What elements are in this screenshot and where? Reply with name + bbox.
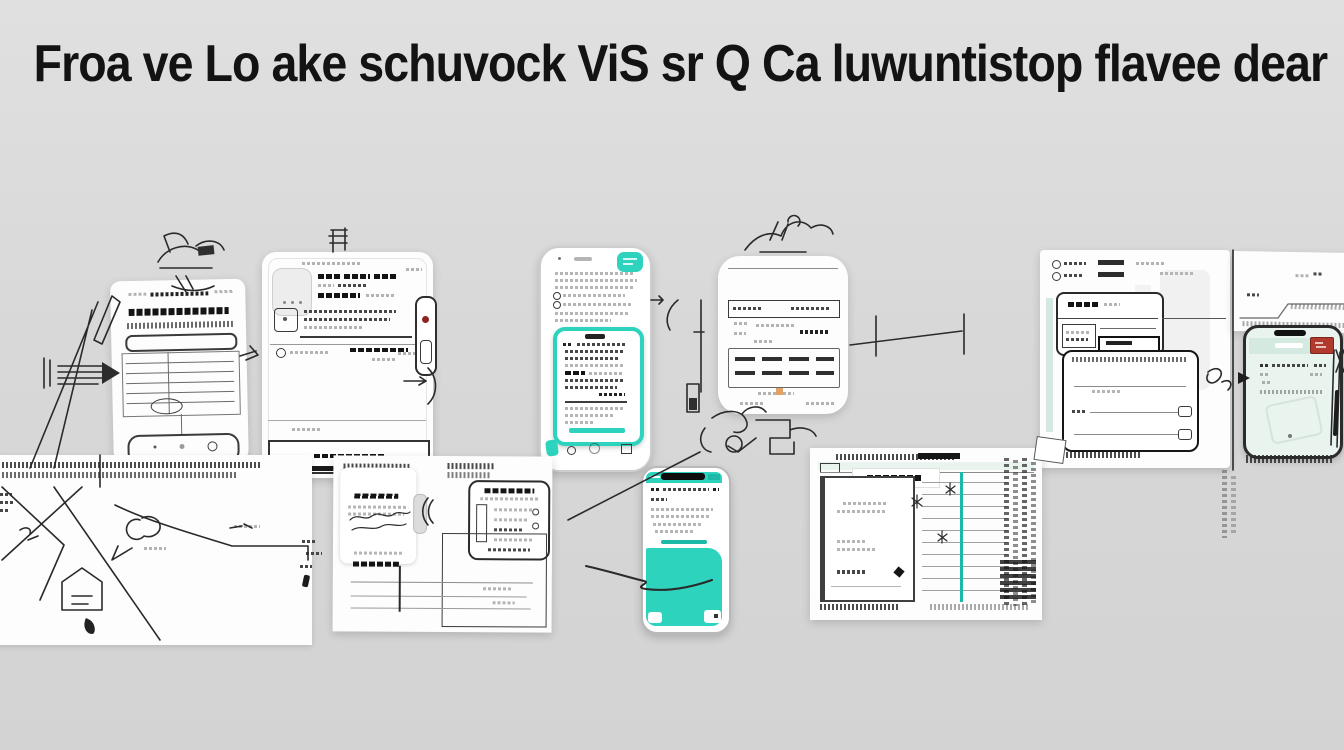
table-row-line bbox=[922, 542, 1008, 543]
corner-chip bbox=[704, 610, 721, 623]
headline-text: Froa ve Lo ake schuvock ViS sr Q Ca luwu… bbox=[34, 34, 1311, 93]
scribble-line bbox=[734, 332, 746, 335]
scribble-line bbox=[1262, 381, 1270, 384]
scribble-line bbox=[150, 291, 208, 296]
teal-content-block bbox=[646, 548, 722, 626]
dash bbox=[789, 371, 809, 375]
tiny-circle-icon bbox=[276, 348, 286, 358]
scribble-line bbox=[563, 343, 573, 346]
scribble-line bbox=[563, 294, 625, 297]
margin-mark bbox=[0, 501, 14, 504]
header-scribble-row bbox=[2, 462, 260, 468]
margin-mark bbox=[0, 509, 10, 512]
table-row-line bbox=[922, 494, 1008, 495]
corner-chip bbox=[648, 612, 662, 623]
scribble-line bbox=[733, 307, 763, 310]
scribble-line bbox=[1313, 272, 1323, 275]
table-row-line bbox=[922, 482, 1008, 483]
teal-side-stripe bbox=[1046, 298, 1053, 432]
embedded-teal-card bbox=[553, 327, 644, 446]
card-heading-scribble bbox=[484, 488, 534, 493]
content-line bbox=[1090, 412, 1178, 413]
field-pill bbox=[125, 333, 237, 352]
table-row-line bbox=[922, 566, 1008, 567]
margin-glyph-column bbox=[1222, 470, 1227, 538]
scribble-line bbox=[304, 310, 396, 313]
header-bar bbox=[728, 300, 840, 318]
footer-dot bbox=[179, 444, 184, 449]
tab-mark bbox=[623, 263, 633, 265]
side-pill-control bbox=[415, 296, 437, 376]
top-rule bbox=[728, 268, 838, 269]
camera-dot bbox=[558, 257, 561, 260]
header-scribble-row bbox=[447, 463, 495, 469]
scribble-line bbox=[1136, 262, 1166, 265]
dash bbox=[762, 371, 782, 375]
status-text-mark bbox=[650, 476, 660, 478]
name-scribble bbox=[318, 274, 340, 279]
scribble-line bbox=[318, 284, 334, 287]
scribble-line bbox=[1064, 274, 1082, 277]
card-divider bbox=[565, 401, 627, 403]
scribble-line bbox=[565, 357, 619, 360]
float-label bbox=[144, 547, 166, 550]
scribble-line bbox=[599, 393, 625, 396]
scribble-line bbox=[754, 340, 774, 343]
scribble-line bbox=[366, 294, 396, 297]
scribble-line bbox=[1072, 410, 1086, 413]
thin-rule bbox=[268, 420, 426, 421]
table-row-line bbox=[922, 530, 1008, 531]
section-divider bbox=[270, 344, 420, 345]
scribble-line bbox=[806, 402, 834, 405]
profile-card bbox=[262, 252, 433, 478]
scribble-line bbox=[565, 350, 625, 353]
scribble-line bbox=[577, 343, 625, 346]
tilted-note-card bbox=[1033, 436, 1066, 464]
scribble-line bbox=[1295, 274, 1309, 277]
phone-notch bbox=[661, 473, 705, 480]
avatar-dot bbox=[299, 301, 302, 304]
dash bbox=[816, 371, 834, 375]
heavy-vertical-mark bbox=[399, 566, 401, 612]
tab-mark bbox=[623, 258, 637, 260]
window-cell bbox=[1062, 324, 1096, 348]
teal-corner-tab bbox=[617, 252, 643, 272]
scribble-line bbox=[555, 319, 611, 322]
teal-blob-icon bbox=[545, 439, 559, 457]
form-documents-sheet bbox=[333, 455, 553, 632]
caption-scribble-row bbox=[1066, 452, 1142, 458]
margin-mark bbox=[0, 493, 12, 496]
row-scribble bbox=[1260, 390, 1324, 394]
scribble-line bbox=[1260, 373, 1270, 376]
record-dot bbox=[422, 316, 429, 323]
table-row-line bbox=[922, 590, 1008, 591]
scribble-line bbox=[791, 307, 831, 310]
toolbar-scribble bbox=[651, 488, 659, 491]
dash bbox=[816, 357, 834, 361]
footer-dot bbox=[153, 445, 156, 448]
window-line bbox=[1100, 328, 1156, 329]
scribble-line bbox=[318, 293, 360, 298]
scribble-line bbox=[406, 268, 422, 271]
list-bullet bbox=[553, 292, 561, 300]
scribble-line bbox=[128, 293, 146, 296]
mini-icon-circle bbox=[1052, 260, 1061, 269]
scribble-line bbox=[1247, 293, 1259, 296]
content-line bbox=[1074, 434, 1178, 435]
scribble-line bbox=[1272, 364, 1308, 367]
connector-line bbox=[181, 414, 182, 434]
chip-glyph bbox=[714, 614, 718, 618]
form-heading-scribble bbox=[354, 494, 398, 499]
nav-circle-icon bbox=[589, 443, 600, 454]
avatar-dot bbox=[283, 301, 286, 304]
card-teal-button bbox=[569, 428, 625, 433]
panel-scribble bbox=[843, 502, 887, 505]
panel-scribble bbox=[837, 540, 867, 543]
stamp-fleck bbox=[1315, 342, 1323, 344]
line-end-icon bbox=[1178, 429, 1192, 440]
scribble-line bbox=[563, 303, 633, 306]
plot-region bbox=[442, 533, 547, 628]
content-line bbox=[1074, 386, 1186, 387]
ledger-line bbox=[351, 596, 527, 598]
table-row-line bbox=[922, 554, 1008, 555]
scribble-line bbox=[302, 262, 362, 265]
footer-scribble-row bbox=[930, 604, 1030, 610]
title-bold-chunk bbox=[918, 453, 960, 459]
stray-glyphs bbox=[300, 565, 312, 568]
body-scribble bbox=[653, 523, 703, 526]
scribble-line bbox=[290, 351, 330, 354]
scribble-line bbox=[555, 272, 635, 275]
card-notch bbox=[585, 334, 605, 339]
phone-notch bbox=[1274, 330, 1306, 336]
arrow-right-of-phone bbox=[651, 296, 663, 304]
stamped-mint-phone bbox=[1243, 325, 1343, 459]
margin-glyph-column bbox=[1231, 476, 1236, 534]
avatar-dot bbox=[291, 301, 294, 304]
scribble-line bbox=[589, 372, 623, 375]
header-pill bbox=[1275, 343, 1303, 348]
dash bbox=[789, 357, 809, 361]
scribble-line bbox=[734, 322, 748, 325]
nav-square-icon bbox=[621, 444, 632, 454]
ledger-sheet bbox=[810, 448, 1042, 620]
scribble-line bbox=[398, 352, 416, 355]
speaker-pill bbox=[574, 257, 592, 261]
panel-scribble bbox=[837, 548, 877, 551]
scribble-line bbox=[756, 324, 796, 327]
window-divider bbox=[1058, 318, 1158, 319]
scribble-line bbox=[740, 402, 764, 405]
scribble-line bbox=[800, 330, 830, 334]
body-scribble bbox=[651, 498, 667, 501]
watermark-scribble bbox=[1264, 395, 1323, 445]
body-scribble bbox=[651, 508, 713, 511]
dash bbox=[735, 371, 755, 375]
long-rule bbox=[1162, 318, 1226, 319]
mini-block bbox=[1098, 272, 1124, 277]
scribble-line bbox=[565, 407, 623, 410]
line-end-icon bbox=[1178, 406, 1192, 417]
black-glyph bbox=[893, 566, 904, 577]
scribble-line bbox=[494, 518, 528, 521]
document-heading-scribble bbox=[129, 307, 229, 316]
body-scribble bbox=[651, 515, 709, 518]
toolbar-scribble bbox=[713, 488, 719, 491]
scribble-line bbox=[555, 286, 633, 289]
scribble-line bbox=[494, 508, 532, 511]
scribble-line bbox=[480, 497, 538, 500]
gray-pill bbox=[413, 494, 427, 534]
ledger-label bbox=[483, 587, 513, 590]
name-scribble bbox=[344, 274, 370, 279]
footer-scribble-row bbox=[820, 604, 900, 610]
lines-right-of-tablet bbox=[850, 314, 964, 356]
glyph-cluster-bold bbox=[1000, 560, 1036, 600]
bird-doodle-icon bbox=[745, 216, 833, 252]
tick-row bbox=[127, 321, 233, 329]
tiny-circle bbox=[532, 522, 539, 529]
scribble-line bbox=[555, 312, 629, 315]
scribble-line bbox=[1104, 303, 1120, 306]
header-scribble-row bbox=[447, 472, 491, 478]
row-icon-dot bbox=[283, 317, 287, 321]
scribble-line bbox=[565, 414, 613, 417]
scribble-line bbox=[354, 552, 402, 555]
document-sheet bbox=[110, 279, 249, 472]
scribble-line bbox=[565, 364, 623, 367]
ladder-doodle-icon bbox=[329, 228, 347, 252]
scribble-line bbox=[565, 386, 617, 389]
orange-chip bbox=[776, 388, 783, 395]
panel-scribble bbox=[837, 510, 887, 513]
scribble-line bbox=[565, 421, 595, 424]
teal-divider-button bbox=[661, 540, 707, 544]
scribble-line bbox=[292, 428, 322, 431]
teal-screen-phone bbox=[641, 466, 731, 634]
tiny-circle bbox=[532, 508, 539, 515]
scribble-line bbox=[304, 326, 364, 329]
stray-glyphs bbox=[302, 540, 316, 543]
framed-panel bbox=[820, 476, 915, 602]
dash bbox=[735, 357, 755, 361]
scribble-line bbox=[1066, 338, 1088, 341]
dash bbox=[762, 357, 782, 361]
window-header-scribble bbox=[1072, 357, 1186, 362]
scribble-line bbox=[1314, 364, 1326, 367]
scribble-line bbox=[348, 506, 408, 509]
bracket-left-of-tablet bbox=[667, 300, 704, 412]
tread-row bbox=[1246, 455, 1332, 463]
collage-canvas: Froa ve Lo ake schuvock ViS sr Q Ca luwu… bbox=[0, 0, 1344, 750]
scribble-line bbox=[1092, 390, 1120, 393]
name-scribble bbox=[374, 274, 396, 279]
panel-rule bbox=[831, 586, 901, 587]
table-row-line bbox=[922, 578, 1008, 579]
stamp-fleck bbox=[1316, 346, 1326, 348]
scribble-line bbox=[565, 371, 585, 375]
toolbar-fill bbox=[1106, 341, 1132, 345]
mini-icon-circle bbox=[1052, 272, 1061, 281]
status-right-block bbox=[708, 474, 720, 480]
teal-rule-vertical bbox=[960, 472, 963, 602]
teal-frame-phone bbox=[539, 246, 652, 472]
nav-circle-icon bbox=[567, 446, 576, 455]
window-title-scribble bbox=[1068, 302, 1098, 307]
row-icon-box bbox=[274, 308, 298, 332]
underline bbox=[300, 336, 412, 338]
body-scribble bbox=[655, 530, 695, 533]
table-row-line bbox=[922, 518, 1008, 519]
panel-scribble bbox=[837, 570, 867, 574]
scribble-line bbox=[1066, 331, 1090, 334]
note-text-row bbox=[1291, 304, 1344, 310]
pill-inner-slot bbox=[420, 340, 432, 364]
ledger-label bbox=[493, 601, 515, 604]
row-label-scribble bbox=[353, 562, 399, 567]
dash-grid bbox=[728, 348, 840, 388]
scribble-line bbox=[494, 528, 522, 531]
form-card-left bbox=[340, 467, 417, 563]
scribble-line bbox=[565, 379, 623, 382]
note-paper bbox=[1232, 251, 1344, 333]
stray-glyphs bbox=[306, 552, 322, 555]
stamp-red bbox=[1310, 337, 1334, 354]
float-label bbox=[234, 525, 260, 528]
left-arrow-lines bbox=[30, 296, 120, 468]
scribble-line bbox=[304, 318, 390, 321]
scribble-line bbox=[372, 358, 396, 361]
scribble-line bbox=[1260, 364, 1268, 367]
table-row-line bbox=[922, 506, 1008, 507]
list-bullet bbox=[553, 301, 561, 309]
window-large bbox=[1062, 350, 1199, 452]
toolbar-scribble bbox=[663, 488, 709, 491]
tiny-dot bbox=[1288, 434, 1292, 438]
scribble-line bbox=[1310, 373, 1322, 376]
tablet-panel bbox=[718, 256, 848, 414]
scribble-line bbox=[338, 284, 368, 287]
scribble-line bbox=[1064, 262, 1086, 265]
mini-block bbox=[1098, 260, 1124, 265]
header-scribble-row bbox=[2, 472, 236, 478]
schematic-sketch-panel bbox=[0, 455, 312, 645]
scribble-line bbox=[214, 290, 234, 293]
scribble-line bbox=[555, 279, 637, 282]
scribble-line bbox=[348, 513, 404, 516]
